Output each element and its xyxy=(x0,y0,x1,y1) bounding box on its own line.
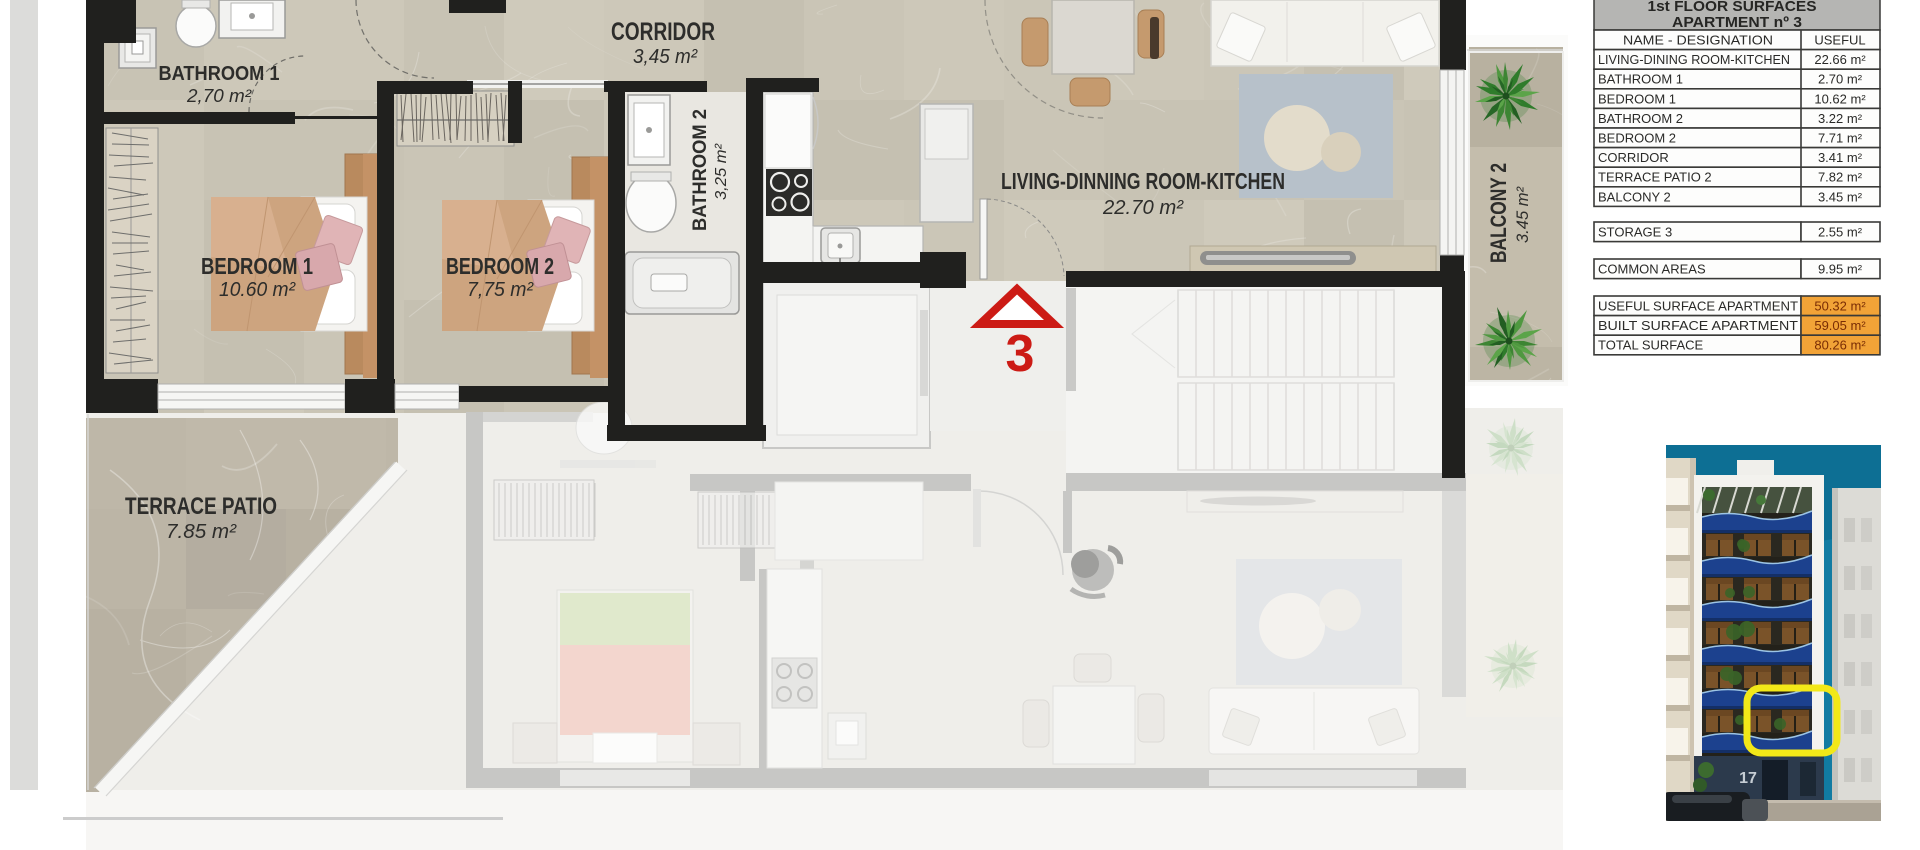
svg-text:7.71 m²: 7.71 m² xyxy=(1818,131,1863,146)
svg-text:LIVING-DINNING ROOM-KITCHEN: LIVING-DINNING ROOM-KITCHEN xyxy=(1001,168,1285,194)
svg-text:1st FLOOR SURFACES: 1st FLOOR SURFACES xyxy=(1648,0,1817,15)
svg-text:TERRACE PATIO 2: TERRACE PATIO 2 xyxy=(1598,170,1712,185)
svg-text:3.45 m²: 3.45 m² xyxy=(1818,189,1863,204)
svg-text:BATHROOM 1: BATHROOM 1 xyxy=(159,63,280,85)
svg-text:STORAGE 3: STORAGE 3 xyxy=(1598,225,1672,240)
svg-text:80.26 m²: 80.26 m² xyxy=(1814,338,1866,353)
svg-text:USEFUL: USEFUL xyxy=(1814,33,1865,48)
svg-text:3.22 m²: 3.22 m² xyxy=(1818,111,1863,126)
svg-text:LIVING-DINING ROOM-KITCHEN: LIVING-DINING ROOM-KITCHEN xyxy=(1598,52,1790,67)
svg-text:17: 17 xyxy=(1739,770,1757,787)
svg-text:22.70 m²: 22.70 m² xyxy=(1102,197,1184,219)
svg-text:BALCONY 2: BALCONY 2 xyxy=(1598,189,1671,204)
svg-text:7.85 m²: 7.85 m² xyxy=(166,521,237,543)
svg-text:59.05 m²: 59.05 m² xyxy=(1814,318,1866,333)
svg-text:10.62 m²: 10.62 m² xyxy=(1814,91,1866,106)
svg-text:2.55 m²: 2.55 m² xyxy=(1818,225,1863,240)
svg-text:BEDROOM 1: BEDROOM 1 xyxy=(1598,91,1676,106)
svg-text:3,25 m²: 3,25 m² xyxy=(713,143,730,200)
svg-text:3.41 m²: 3.41 m² xyxy=(1818,150,1863,165)
svg-text:10.60 m²: 10.60 m² xyxy=(219,279,296,301)
svg-text:7.82 m²: 7.82 m² xyxy=(1818,170,1863,185)
svg-text:NAME - DESIGNATION: NAME - DESIGNATION xyxy=(1623,33,1773,48)
svg-text:50.32 m²: 50.32 m² xyxy=(1814,299,1866,314)
svg-text:2.70 m²: 2.70 m² xyxy=(1818,72,1863,87)
svg-text:BEDROOM 2: BEDROOM 2 xyxy=(446,253,554,279)
svg-text:TOTAL SURFACE: TOTAL SURFACE xyxy=(1598,338,1704,353)
svg-text:BEDROOM 1: BEDROOM 1 xyxy=(201,253,313,279)
svg-text:APARTMENT nº 3: APARTMENT nº 3 xyxy=(1672,14,1802,31)
svg-text:3.45 m²: 3.45 m² xyxy=(1513,186,1532,243)
svg-text:9.95 m²: 9.95 m² xyxy=(1818,262,1863,277)
svg-text:BUILT SURFACE APARTMENT: BUILT SURFACE APARTMENT xyxy=(1598,318,1798,333)
svg-text:BEDROOM 2: BEDROOM 2 xyxy=(1598,131,1676,146)
svg-text:2,70 m²: 2,70 m² xyxy=(186,86,252,106)
svg-text:BATHROOM 2: BATHROOM 2 xyxy=(1598,111,1683,126)
svg-text:BALCONY 2: BALCONY 2 xyxy=(1486,163,1511,263)
svg-text:22.66 m²: 22.66 m² xyxy=(1814,52,1866,67)
svg-text:3,45 m²: 3,45 m² xyxy=(633,46,698,68)
svg-text:BATHROOM 2: BATHROOM 2 xyxy=(690,109,711,231)
svg-text:COMMON AREAS: COMMON AREAS xyxy=(1598,262,1706,277)
svg-text:BATHROOM 1: BATHROOM 1 xyxy=(1598,72,1683,87)
svg-text:TERRACE PATIO: TERRACE PATIO xyxy=(125,493,277,520)
svg-text:3: 3 xyxy=(1006,325,1035,383)
svg-text:7,75 m²: 7,75 m² xyxy=(467,279,534,301)
svg-text:CORRIDOR: CORRIDOR xyxy=(611,18,715,46)
svg-text:CORRIDOR: CORRIDOR xyxy=(1598,150,1669,165)
svg-text:USEFUL SURFACE APARTMENT: USEFUL SURFACE APARTMENT xyxy=(1598,299,1798,314)
